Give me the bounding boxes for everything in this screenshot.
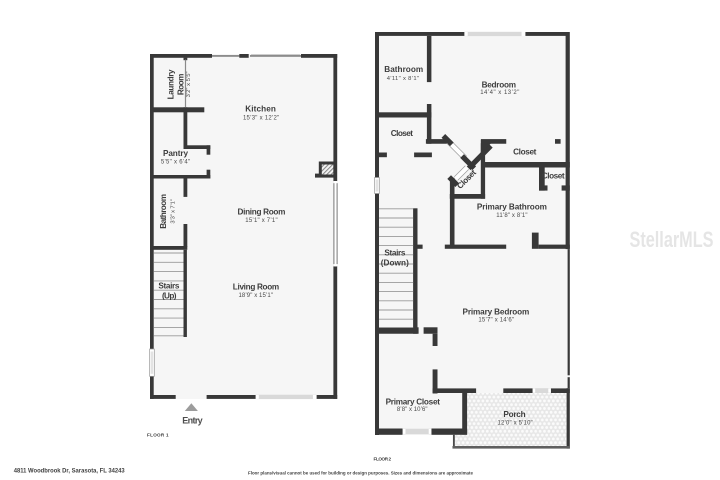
svg-text:Stairs: Stairs xyxy=(384,249,406,258)
svg-text:FLOOR 2: FLOOR 2 xyxy=(374,457,392,462)
svg-text:Bathroom: Bathroom xyxy=(159,194,168,229)
svg-text:15’3" x 12’2": 15’3" x 12’2" xyxy=(243,115,279,121)
svg-text:3’3" x 7’1": 3’3" x 7’1" xyxy=(170,199,176,224)
svg-text:Stairs: Stairs xyxy=(158,282,180,291)
svg-text:FLOOR 1: FLOOR 1 xyxy=(147,433,169,438)
svg-text:Porch: Porch xyxy=(503,410,525,419)
svg-text:Floor plans/visual cannot be u: Floor plans/visual cannot be used for bu… xyxy=(248,471,473,476)
svg-text:StellarMLS: StellarMLS xyxy=(630,227,714,252)
svg-text:Closet: Closet xyxy=(542,171,565,180)
svg-text:(Down): (Down) xyxy=(381,258,409,267)
svg-text:4’11" x 8’1": 4’11" x 8’1" xyxy=(387,76,419,82)
svg-text:Dining Room: Dining Room xyxy=(238,208,286,217)
svg-text:4811 Woodbrook Dr, Sarasota, F: 4811 Woodbrook Dr, Sarasota, FL 34243 xyxy=(14,468,125,475)
svg-text:Room: Room xyxy=(176,74,185,96)
svg-text:Bedroom: Bedroom xyxy=(482,80,516,89)
svg-text:14’4" x 13’2": 14’4" x 13’2" xyxy=(480,90,519,96)
svg-text:3’2" x 5’5": 3’2" x 5’5" xyxy=(186,71,192,97)
svg-text:Closet: Closet xyxy=(391,129,414,138)
svg-text:Laundry: Laundry xyxy=(166,69,175,99)
svg-text:8’8" x 10’6": 8’8" x 10’6" xyxy=(397,407,428,413)
svg-text:Bathroom: Bathroom xyxy=(384,65,423,74)
svg-text:12’0" x 5’10": 12’0" x 5’10" xyxy=(498,421,533,427)
svg-text:Closet: Closet xyxy=(513,147,537,156)
svg-text:Primary Bathroom: Primary Bathroom xyxy=(477,203,547,212)
svg-text:Primary Bedroom: Primary Bedroom xyxy=(463,308,530,317)
svg-text:18’9" x 15’1": 18’9" x 15’1" xyxy=(239,293,273,299)
svg-text:15’1" x 7’1": 15’1" x 7’1" xyxy=(245,218,277,224)
svg-text:Living Room: Living Room xyxy=(233,283,279,292)
svg-text:Primary Closet: Primary Closet xyxy=(386,397,441,406)
svg-text:Entry: Entry xyxy=(182,415,202,425)
svg-text:Pantry: Pantry xyxy=(163,149,189,158)
svg-text:11’8" x 8’1": 11’8" x 8’1" xyxy=(496,213,527,219)
svg-text:5’5" x 6’4": 5’5" x 6’4" xyxy=(161,159,190,165)
svg-text:15’7" x 14’6": 15’7" x 14’6" xyxy=(478,318,514,324)
svg-text:(Up): (Up) xyxy=(162,291,177,300)
svg-text:Kitchen: Kitchen xyxy=(245,105,276,114)
